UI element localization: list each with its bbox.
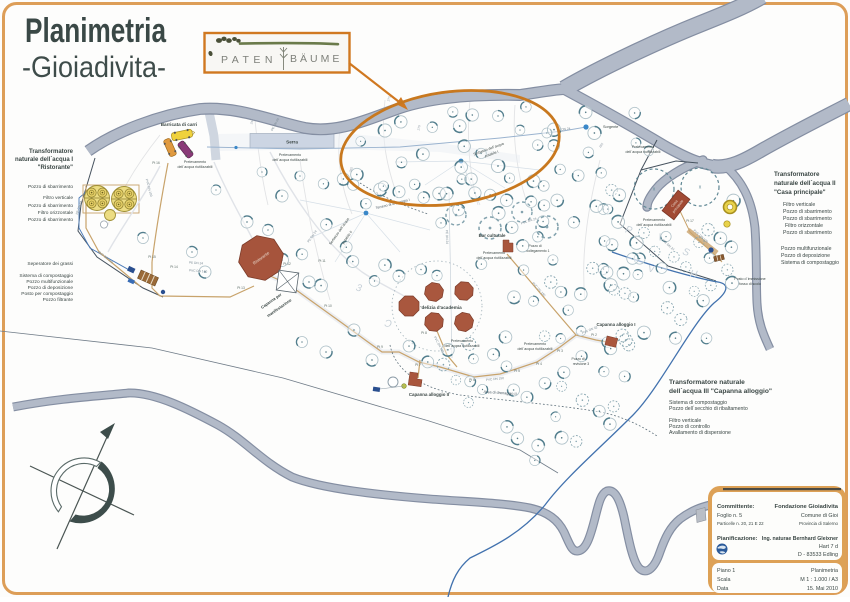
svg-text:PE DN 24: PE DN 24 <box>445 230 450 245</box>
svg-text:Pt 8: Pt 8 <box>421 331 427 335</box>
svg-text:revisione 3: revisione 3 <box>573 362 590 366</box>
svg-text:dell´acqua riutilizzabili: dell´acqua riutilizzabili <box>637 223 672 227</box>
svg-text:dell´acqua riutilizzabili: dell´acqua riutilizzabili <box>273 158 308 162</box>
svg-text:Filtro orizzontale: Filtro orizzontale <box>785 223 823 229</box>
svg-text:Prelevamento: Prelevamento <box>632 145 654 149</box>
svg-text:Pozzo di sbarrimento: Pozzo di sbarrimento <box>783 230 832 236</box>
svg-text:Scala: Scala <box>717 577 731 583</box>
svg-text:Pt 15: Pt 15 <box>148 255 156 259</box>
svg-text:Filtro verticale: Filtro verticale <box>783 202 815 208</box>
svg-text:Avallamento di dispersione: Avallamento di dispersione <box>669 430 731 436</box>
svg-text:Prelevamento: Prelevamento <box>524 342 546 346</box>
svg-text:Serra: Serra <box>286 140 298 145</box>
svg-text:dell´acqua III "Capanna allog: dell´acqua III "Capanna alloggio" <box>669 388 772 395</box>
svg-text:Pt 16: Pt 16 <box>152 161 160 165</box>
svg-text:Pozzo di sbarrimento: Pozzo di sbarrimento <box>28 203 73 209</box>
svg-text:Prelevamento: Prelevamento <box>483 251 505 255</box>
svg-text:Transformatore: Transformatore <box>29 149 74 155</box>
svg-text:Barricata di carri: Barricata di carri <box>161 122 198 127</box>
svg-text:dell´acqua riutilizzabili: dell´acqua riutilizzabili <box>626 150 661 154</box>
svg-text:Pt 6: Pt 6 <box>469 378 475 382</box>
svg-text:Bar culturale: Bar culturale <box>479 233 506 238</box>
svg-text:naturale dell´acqua II: naturale dell´acqua II <box>774 180 836 187</box>
svg-text:Hart 7 d: Hart 7 d <box>819 544 838 550</box>
svg-text:Prelevamento: Prelevamento <box>279 153 301 157</box>
svg-text:Pozzo dell´secchio di ribaltam: Pozzo dell´secchio di ribaltamento <box>669 406 748 412</box>
svg-text:Transformatore: Transformatore <box>774 171 820 178</box>
svg-text:Pt 3: Pt 3 <box>557 349 563 353</box>
svg-text:Posto d´immissione: Posto d´immissione <box>734 277 765 281</box>
svg-text:BÄUME: BÄUME <box>290 53 342 65</box>
svg-text:PATEN: PATEN <box>221 54 277 66</box>
svg-text:Pozzo multifunzionale: Pozzo multifunzionale <box>781 246 832 252</box>
svg-text:Planimetria: Planimetria <box>811 568 838 574</box>
svg-text:Pt 4: Pt 4 <box>536 362 542 366</box>
svg-text:Data: Data <box>717 586 728 592</box>
svg-text:Pt 12: Pt 12 <box>283 262 291 266</box>
svg-text:Pt 13: Pt 13 <box>237 286 245 290</box>
svg-text:M 1 : 1.000 / A3: M 1 : 1.000 / A3 <box>800 577 838 583</box>
svg-text:Sistema di compostaggio: Sistema di compostaggio <box>19 273 73 279</box>
svg-text:Pozzo di deposizione: Pozzo di deposizione <box>781 253 830 259</box>
svg-text:Committente:: Committente: <box>717 504 754 510</box>
svg-text:"Ristorante": "Ristorante" <box>38 165 74 171</box>
svg-text:Pozzo filtrante: Pozzo filtrante <box>43 297 74 303</box>
svg-text:Particelle n. 20, 21 E 22: Particelle n. 20, 21 E 22 <box>717 521 764 526</box>
svg-text:Pt 2: Pt 2 <box>591 333 597 337</box>
svg-text:dell´acqua riutilizzabili: dell´acqua riutilizzabili <box>477 256 512 260</box>
svg-text:Pozzo di: Pozzo di <box>528 244 541 248</box>
svg-text:'delizia d'academia: 'delizia d'academia <box>420 305 462 310</box>
svg-text:Pozzo multifunzionale: Pozzo multifunzionale <box>26 279 73 285</box>
svg-text:Pt 14: Pt 14 <box>170 265 178 269</box>
svg-text:Seperatore dei grassi: Seperatore dei grassi <box>27 261 73 267</box>
svg-text:dell´acqua riutilizzabili: dell´acqua riutilizzabili <box>445 344 480 348</box>
svg-text:dell´acqua riutilizzabili: dell´acqua riutilizzabili <box>178 165 213 169</box>
svg-text:Pozzo di: Pozzo di <box>571 357 584 361</box>
svg-text:Sistema di compostaggio: Sistema di compostaggio <box>781 260 839 266</box>
svg-text:Capanna alloggio I: Capanna alloggio I <box>596 322 635 327</box>
svg-text:collegamento 1: collegamento 1 <box>527 249 550 253</box>
svg-text:fosso di scolo: fosso di scolo <box>739 282 761 286</box>
svg-text:Prelevamento: Prelevamento <box>643 218 665 222</box>
svg-text:Pt 9: Pt 9 <box>377 345 383 349</box>
svg-text:Prelevamento: Prelevamento <box>451 339 473 343</box>
svg-text:D - 83533 Edling: D - 83533 Edling <box>798 552 838 558</box>
svg-text:Pt 10: Pt 10 <box>324 304 332 308</box>
svg-text:Pt 11: Pt 11 <box>318 259 325 263</box>
svg-text:Pozzo di sbarrimento: Pozzo di sbarrimento <box>783 209 832 215</box>
svg-text:Pozzo di sbarrimento: Pozzo di sbarrimento <box>783 216 832 222</box>
svg-text:naturale dell´acqua I: naturale dell´acqua I <box>15 157 73 163</box>
svg-text:Comune di Gioi: Comune di Gioi <box>801 513 838 519</box>
svg-text:Transformatore naturale: Transformatore naturale <box>669 379 745 386</box>
svg-text:Sorgente: Sorgente <box>603 125 618 129</box>
svg-text:Filtro orizzontale: Filtro orizzontale <box>38 210 74 216</box>
svg-text:Provincia di Salerno: Provincia di Salerno <box>799 521 839 526</box>
svg-text:Prelevamento: Prelevamento <box>184 160 206 164</box>
svg-text:Pt 7: Pt 7 <box>415 363 421 367</box>
svg-text:Planimetria: Planimetria <box>25 12 167 50</box>
svg-text:Capanna alloggio II: Capanna alloggio II <box>409 392 449 397</box>
svg-text:Pozzo di deposizione: Pozzo di deposizione <box>28 285 74 291</box>
svg-text:Fondazione Gioiadivita: Fondazione Gioiadivita <box>775 504 839 510</box>
svg-text:Filtro verticale: Filtro verticale <box>43 195 73 201</box>
svg-text:Posto per compostaggio: Posto per compostaggio <box>21 291 73 297</box>
svg-text:Ing. naturae Bernhard Gleixner: Ing. naturae Bernhard Gleixner <box>762 536 838 542</box>
svg-text:Foglio n. 5: Foglio n. 5 <box>717 513 742 519</box>
svg-text:Piano 1: Piano 1 <box>717 568 735 574</box>
svg-text:-Gioiadivita-: -Gioiadivita- <box>22 51 166 84</box>
svg-text:Pozzo di sbarrimento: Pozzo di sbarrimento <box>28 217 73 223</box>
svg-text:dell´acqua riutilizzabili: dell´acqua riutilizzabili <box>518 347 553 351</box>
svg-text:Pianificazione:: Pianificazione: <box>717 536 758 542</box>
svg-text:"Casa principale": "Casa principale" <box>774 189 826 196</box>
svg-text:Pt 17: Pt 17 <box>686 219 694 223</box>
svg-text:Pt 5: Pt 5 <box>514 369 520 373</box>
svg-text:Pozzo di sbarrimento: Pozzo di sbarrimento <box>28 184 73 190</box>
svg-text:15. Mai 2010: 15. Mai 2010 <box>807 586 838 592</box>
